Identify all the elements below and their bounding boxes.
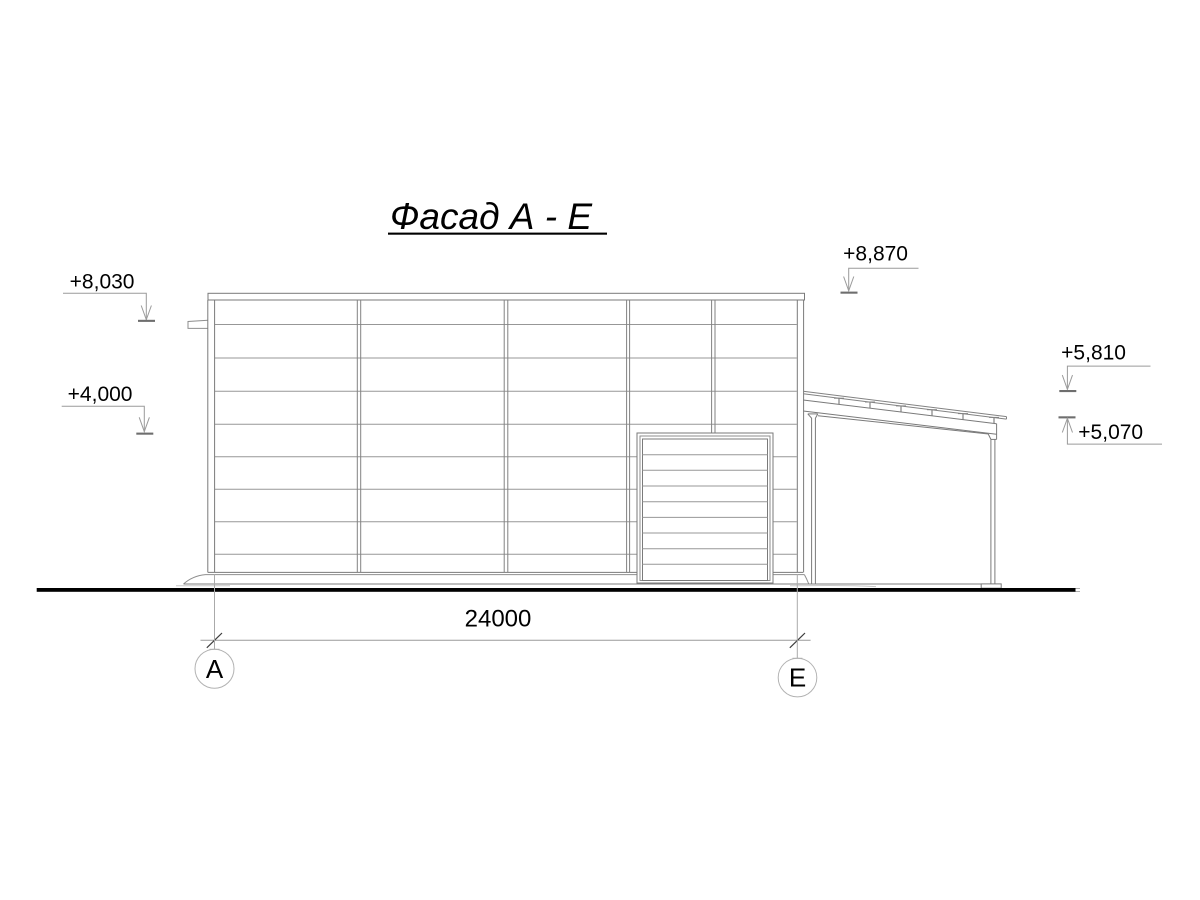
- svg-text:+5,810: +5,810: [1061, 342, 1126, 365]
- svg-text:+5,070: +5,070: [1078, 421, 1143, 444]
- svg-text:+8,030: +8,030: [70, 271, 135, 294]
- svg-text:+8,870: +8,870: [843, 243, 908, 266]
- svg-text:Фасад А - Е: Фасад А - Е: [390, 196, 593, 237]
- svg-text:А: А: [206, 654, 224, 684]
- svg-text:Е: Е: [789, 663, 806, 693]
- svg-text:+4,000: +4,000: [68, 383, 133, 406]
- svg-text:24000: 24000: [465, 606, 532, 633]
